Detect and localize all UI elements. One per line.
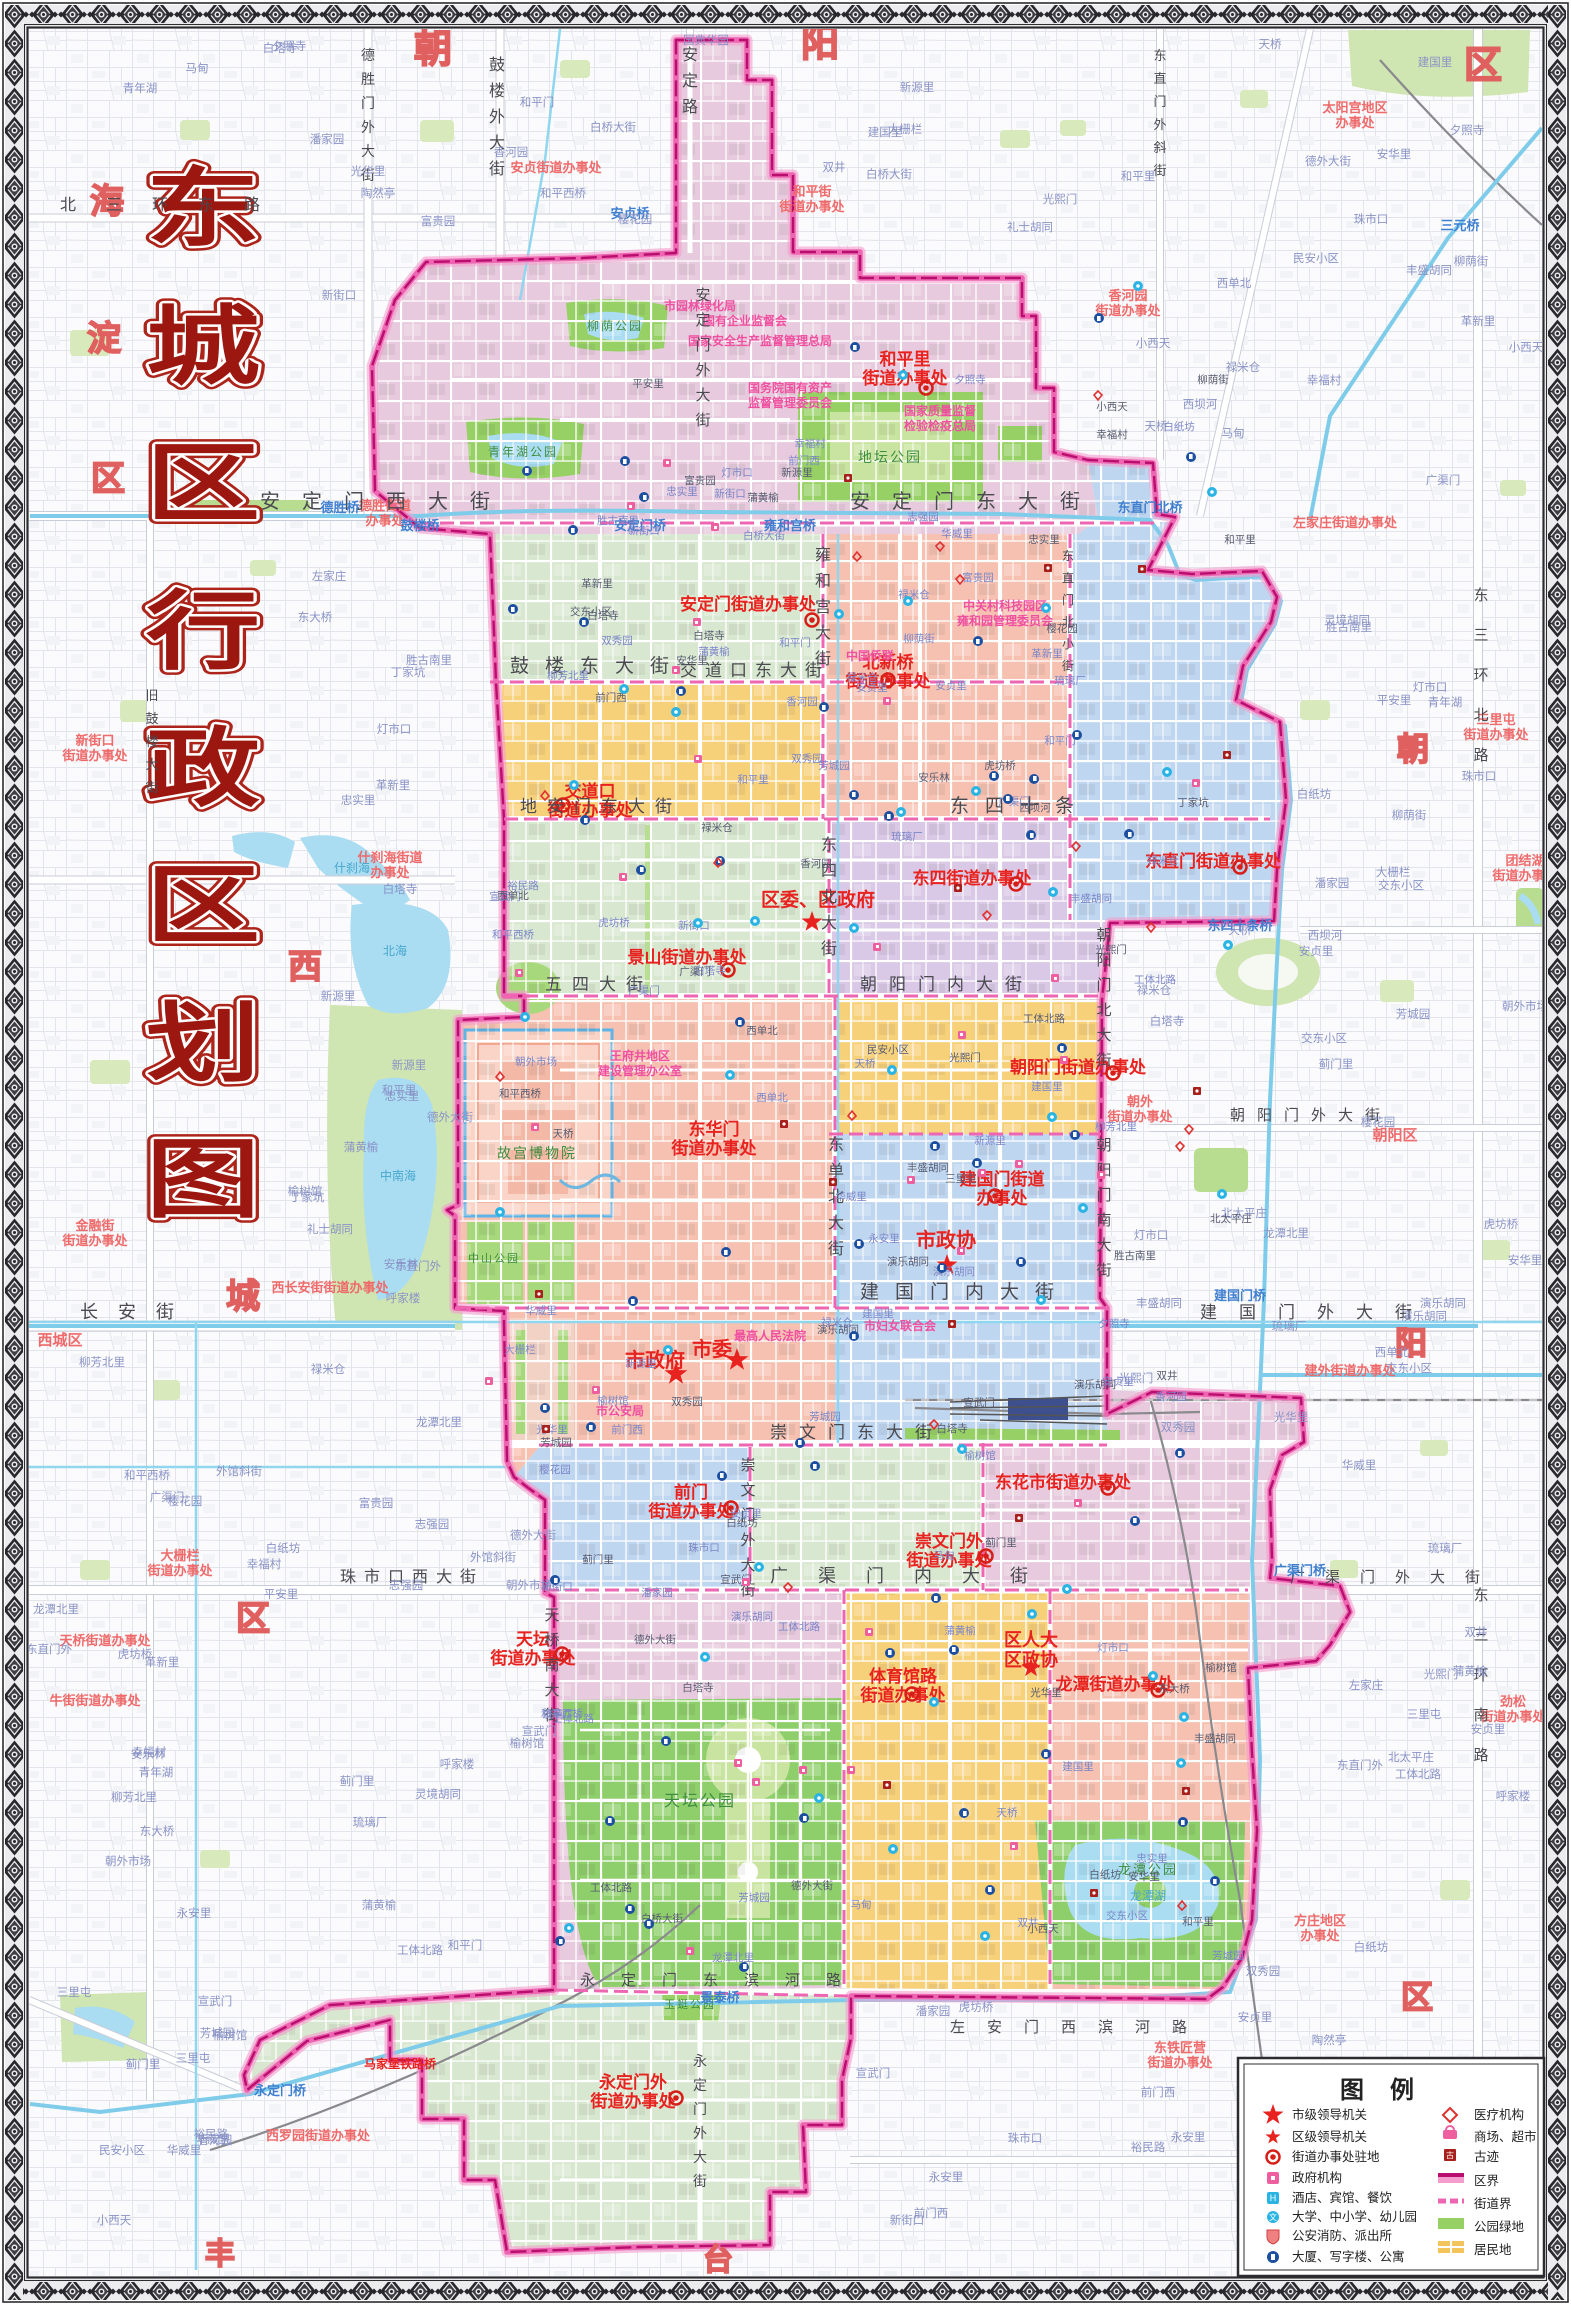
svg-text:丰盛胡同: 丰盛胡同 (1136, 1296, 1182, 1310)
svg-text:建国里: 建国里 (1031, 1080, 1063, 1093)
svg-text:马甸: 马甸 (186, 62, 209, 75)
svg-text:白塔寺: 白塔寺 (682, 1681, 714, 1694)
svg-text:大: 大 (361, 143, 375, 159)
svg-text:光熙门: 光熙门 (1095, 943, 1127, 956)
svg-text:芳城园: 芳城园 (1212, 1949, 1244, 1962)
svg-text:建设管理办公室: 建设管理办公室 (597, 1063, 682, 1078)
svg-text:丰盛胡同: 丰盛胡同 (1194, 1732, 1236, 1745)
svg-text:环: 环 (1473, 667, 1488, 684)
svg-text:和平门: 和平门 (779, 636, 811, 649)
svg-text:行: 行 (146, 584, 260, 680)
svg-text:蒲黄榆: 蒲黄榆 (747, 491, 779, 504)
svg-text:广渠门: 广渠门 (150, 1490, 185, 1504)
svg-text:建国里: 建国里 (1418, 55, 1453, 69)
svg-text:白塔寺: 白塔寺 (1150, 1014, 1185, 1028)
svg-text:安华里: 安华里 (1377, 147, 1412, 161)
svg-text:交东小区: 交东小区 (1106, 1909, 1148, 1922)
svg-text:酒店、宾馆、餐饮: 酒店、宾馆、餐饮 (1292, 2190, 1393, 2205)
svg-text:建国门外大街: 建国门外大街 (1200, 1303, 1434, 1322)
svg-text:外馆斜街: 外馆斜街 (216, 1464, 262, 1478)
svg-text:办事处: 办事处 (365, 513, 405, 528)
svg-text:门: 门 (1062, 592, 1074, 607)
svg-text:虎坊桥: 虎坊桥 (598, 916, 630, 929)
svg-text:北太平庄: 北太平庄 (1210, 1212, 1252, 1225)
svg-text:办事处: 办事处 (370, 865, 410, 880)
svg-text:丰盛胡同: 丰盛胡同 (1070, 892, 1112, 905)
svg-text:工体北路: 工体北路 (397, 1943, 443, 1957)
svg-text:街道办事处: 街道办事处 (590, 2091, 677, 2111)
svg-text:街: 街 (1096, 1052, 1111, 1069)
svg-text:龙潭北里: 龙潭北里 (712, 1951, 754, 1964)
svg-text:小西天: 小西天 (1027, 1923, 1059, 1935)
svg-text:街道办事处: 街道办事处 (1094, 303, 1161, 318)
svg-text:体育馆路: 体育馆路 (869, 1666, 938, 1686)
svg-text:珠市口: 珠市口 (1008, 2131, 1043, 2145)
svg-text:演乐胡同: 演乐胡同 (1420, 1296, 1466, 1310)
svg-text:街道办事处: 街道办事处 (1479, 1709, 1546, 1724)
svg-text:安华里: 安华里 (1128, 1870, 1160, 1883)
svg-text:检验检疫总局: 检验检疫总局 (904, 418, 976, 433)
svg-text:马甸: 马甸 (1222, 427, 1245, 440)
svg-text:榆树馆: 榆树馆 (213, 2028, 248, 2042)
svg-text:街道办事处: 街道办事处 (648, 1501, 735, 1521)
svg-text:公园绿地: 公园绿地 (1474, 2219, 1525, 2234)
svg-text:安: 安 (695, 287, 710, 304)
svg-text:演乐胡同: 演乐胡同 (1401, 1309, 1447, 1323)
svg-text:灯市口: 灯市口 (1134, 1228, 1169, 1242)
svg-text:白桥大街: 白桥大街 (590, 120, 636, 134)
svg-text:西单北: 西单北 (497, 890, 529, 902)
svg-text:樱花园: 樱花园 (618, 212, 653, 226)
svg-text:双秀园: 双秀园 (791, 753, 823, 765)
svg-text:定: 定 (682, 72, 698, 90)
svg-text:崇: 崇 (740, 1457, 755, 1474)
svg-text:和平里: 和平里 (737, 774, 769, 786)
svg-text:夕照寺: 夕照寺 (1450, 124, 1485, 137)
svg-text:柳芳北里: 柳芳北里 (111, 1790, 157, 1804)
svg-text:外: 外 (489, 108, 505, 126)
svg-text:丰盛胡同: 丰盛胡同 (1406, 263, 1452, 277)
svg-text:路: 路 (682, 98, 698, 116)
svg-text:永定门东滨河路: 永定门东滨河路 (580, 1972, 867, 1989)
svg-text:安定门东大街: 安定门东大街 (850, 490, 1102, 513)
svg-text:演乐胡同: 演乐胡同 (887, 1255, 929, 1268)
svg-text:呼家楼: 呼家楼 (386, 1291, 421, 1305)
svg-text:新街口: 新街口 (75, 733, 114, 748)
svg-text:地坛公园: 地坛公园 (858, 449, 922, 465)
svg-text:直: 直 (1062, 571, 1074, 585)
svg-text:前门西: 前门西 (788, 454, 820, 467)
svg-text:街道办事处驻地: 街道办事处驻地 (1292, 2149, 1380, 2164)
svg-text:永定门桥: 永定门桥 (253, 2083, 307, 2098)
svg-text:政: 政 (146, 721, 260, 817)
svg-text:琉璃厂: 琉璃厂 (891, 830, 923, 843)
svg-text:大学、中小学、幼儿园: 大学、中小学、幼儿园 (1292, 2209, 1417, 2224)
svg-text:朝外市场: 朝外市场 (105, 1854, 151, 1868)
svg-text:街: 街 (815, 650, 831, 668)
svg-text:和平里: 和平里 (1182, 1916, 1214, 1928)
svg-text:和平西桥: 和平西桥 (492, 929, 534, 941)
svg-text:蓟门里: 蓟门里 (985, 1536, 1017, 1549)
svg-text:中关村科技园区: 中关村科技园区 (963, 598, 1047, 613)
svg-text:天桥: 天桥 (997, 1807, 1018, 1819)
svg-text:平安里: 平安里 (1377, 693, 1412, 707)
svg-text:香河园: 香河园 (494, 146, 529, 159)
svg-text:鼓: 鼓 (145, 711, 158, 726)
svg-text:外: 外 (361, 119, 375, 135)
svg-text:琉璃厂: 琉璃厂 (542, 1708, 574, 1721)
svg-text:虎坊桥: 虎坊桥 (959, 2000, 994, 2014)
svg-text:潘家园: 潘家园 (641, 1586, 673, 1599)
svg-text:平安里: 平安里 (632, 377, 664, 390)
svg-text:蓟门里: 蓟门里 (126, 2057, 161, 2071)
svg-text:珠市口: 珠市口 (688, 1541, 720, 1554)
svg-text:国家质量监督: 国家质量监督 (904, 403, 976, 418)
svg-text:天: 天 (544, 1607, 559, 1624)
svg-text:青年湖公园: 青年湖公园 (488, 444, 558, 459)
svg-text:榆树馆: 榆树馆 (1205, 1661, 1237, 1674)
svg-text:工体北路: 工体北路 (778, 1620, 820, 1633)
svg-text:柳荫街: 柳荫街 (1454, 254, 1489, 268)
svg-text:白纸坊: 白纸坊 (266, 1541, 301, 1555)
svg-text:国有企业监督会: 国有企业监督会 (703, 313, 788, 328)
svg-text:虎坊桥: 虎坊桥 (1484, 1217, 1519, 1231)
svg-text:文: 文 (740, 1482, 755, 1499)
svg-text:华威里: 华威里 (525, 1304, 557, 1317)
svg-text:北: 北 (1096, 1002, 1111, 1019)
svg-text:革新里: 革新里 (1461, 314, 1496, 328)
svg-text:H: H (1270, 2193, 1277, 2203)
svg-text:安华里: 安华里 (1508, 1253, 1543, 1267)
svg-text:西单北: 西单北 (1217, 277, 1252, 290)
svg-text:龙潭北里: 龙潭北里 (1263, 1227, 1309, 1240)
svg-text:左家庄: 左家庄 (1349, 1678, 1384, 1692)
svg-text:楼: 楼 (145, 734, 158, 749)
svg-text:龙潭北里: 龙潭北里 (33, 1603, 79, 1616)
svg-text:朝外: 朝外 (1127, 1094, 1153, 1109)
svg-text:双井: 双井 (823, 160, 846, 174)
svg-text:街: 街 (489, 160, 505, 178)
svg-text:礼士胡同: 礼士胡同 (307, 1222, 353, 1236)
svg-text:裕民路: 裕民路 (1131, 2140, 1166, 2154)
svg-text:丰: 丰 (205, 2238, 235, 2271)
svg-text:新源里: 新源里 (321, 989, 356, 1003)
svg-text:西坝河: 西坝河 (1308, 928, 1343, 942)
svg-text:东: 东 (1473, 587, 1488, 604)
svg-text:双井: 双井 (1465, 1625, 1488, 1639)
svg-text:西城区: 西城区 (37, 1331, 82, 1349)
svg-text:青年湖: 青年湖 (1428, 695, 1463, 709)
svg-text:王府井地区: 王府井地区 (610, 1048, 670, 1063)
svg-text:宣武门: 宣武门 (522, 1724, 557, 1738)
svg-text:禄米仓: 禄米仓 (311, 1362, 346, 1376)
svg-text:革新里: 革新里 (581, 577, 613, 590)
svg-text:和平西桥: 和平西桥 (540, 187, 586, 200)
svg-text:富贵园: 富贵园 (684, 474, 716, 487)
svg-text:交东小区: 交东小区 (1378, 878, 1424, 892)
svg-text:东: 东 (821, 836, 837, 854)
svg-text:大栅栏: 大栅栏 (1376, 865, 1411, 879)
svg-text:定: 定 (695, 312, 710, 329)
svg-text:城: 城 (146, 299, 260, 395)
svg-text:青年湖: 青年湖 (139, 1765, 174, 1779)
svg-text:金融街: 金融街 (74, 1218, 114, 1233)
svg-text:外: 外 (1153, 117, 1166, 132)
svg-text:医疗机构: 医疗机构 (1474, 2107, 1524, 2122)
svg-text:什刹海: 什刹海 (334, 860, 370, 875)
svg-text:和平街: 和平街 (792, 184, 831, 199)
svg-text:忠实里: 忠实里 (1028, 533, 1060, 546)
svg-text:安贞里: 安贞里 (1299, 944, 1334, 958)
svg-text:双秀园: 双秀园 (1246, 1965, 1281, 1978)
svg-text:光熙门: 光熙门 (1043, 192, 1078, 206)
svg-text:新源里: 新源里 (900, 80, 935, 94)
svg-text:志强园: 志强园 (415, 1518, 450, 1531)
svg-text:德外大街: 德外大街 (634, 1633, 676, 1646)
svg-text:天桥: 天桥 (855, 1058, 876, 1070)
svg-text:朝: 朝 (1397, 731, 1429, 767)
svg-text:东大桥: 东大桥 (140, 1824, 175, 1838)
svg-text:新源里: 新源里 (781, 466, 813, 479)
svg-text:龙潭湖: 龙潭湖 (1130, 1888, 1166, 1903)
svg-text:建国里: 建国里 (862, 1307, 894, 1320)
svg-text:双秀园: 双秀园 (601, 635, 633, 647)
svg-text:前门西: 前门西 (1141, 2085, 1176, 2099)
svg-text:潘家园: 潘家园 (1315, 876, 1350, 890)
svg-text:禄米仓: 禄米仓 (898, 588, 930, 601)
svg-text:蒲黄榆: 蒲黄榆 (362, 1898, 397, 1912)
svg-text:广渠门桥: 广渠门桥 (1274, 1563, 1327, 1578)
svg-text:街: 街 (693, 2173, 707, 2189)
svg-text:双秀园: 双秀园 (1161, 1421, 1196, 1434)
svg-text:鼓楼桥: 鼓楼桥 (400, 518, 440, 533)
svg-text:古迹: 古迹 (1474, 2149, 1500, 2164)
svg-text:建国里: 建国里 (1062, 1760, 1094, 1773)
svg-text:崇文门东大街: 崇文门东大街 (770, 1423, 944, 1442)
svg-text:天桥: 天桥 (553, 1128, 574, 1140)
svg-text:公安消防、派出所: 公安消防、派出所 (1292, 2228, 1392, 2243)
svg-text:德: 德 (361, 47, 375, 63)
svg-text:灯市口: 灯市口 (1097, 1641, 1129, 1654)
svg-text:大: 大 (145, 757, 158, 772)
svg-text:蒲黄榆: 蒲黄榆 (944, 1624, 976, 1637)
svg-text:双井: 双井 (1157, 1369, 1178, 1382)
svg-text:北太平庄: 北太平庄 (1388, 1750, 1434, 1764)
svg-text:柳荫街: 柳荫街 (1392, 808, 1427, 822)
svg-text:樱花园: 樱花园 (1361, 1115, 1396, 1129)
svg-text:新街口: 新街口 (714, 487, 746, 500)
svg-text:街: 街 (1062, 659, 1074, 673)
svg-text:永定门外: 永定门外 (598, 2072, 667, 2092)
svg-text:交东小区: 交东小区 (1386, 1361, 1432, 1375)
svg-text:琉璃厂: 琉璃厂 (1272, 1319, 1307, 1333)
svg-text:朝阳门街道办事处: 朝阳门街道办事处 (1010, 1057, 1147, 1077)
svg-text:小西天: 小西天 (1509, 341, 1544, 354)
svg-text:永安里: 永安里 (929, 2170, 964, 2184)
svg-text:华威里: 华威里 (196, 2132, 231, 2146)
svg-text:大: 大 (821, 914, 837, 932)
svg-text:阳: 阳 (801, 23, 839, 65)
svg-text:德外大街: 德外大街 (1305, 154, 1351, 168)
svg-text:街: 街 (821, 940, 837, 958)
svg-text:街: 街 (1096, 1262, 1111, 1279)
svg-text:光熙门: 光熙门 (949, 1051, 981, 1064)
svg-text:志强园: 志强园 (907, 510, 939, 523)
svg-text:街道办事处: 街道办事处 (671, 1138, 758, 1158)
svg-text:区: 区 (146, 858, 260, 954)
svg-text:街道办事处: 街道办事处 (61, 748, 128, 763)
svg-text:平安里: 平安里 (264, 1587, 299, 1601)
svg-text:门: 门 (693, 2101, 707, 2117)
svg-text:德外大街: 德外大街 (791, 1879, 833, 1892)
svg-text:前门西: 前门西 (611, 1423, 643, 1436)
svg-text:东大桥: 东大桥 (1158, 1682, 1190, 1695)
svg-text:革新里: 革新里 (376, 778, 411, 792)
svg-text:三里屯: 三里屯 (176, 2052, 211, 2065)
svg-text:北: 北 (1473, 707, 1488, 724)
svg-text:外馆斜街: 外馆斜街 (470, 1550, 516, 1564)
svg-text:潘家园: 潘家园 (310, 132, 345, 146)
svg-text:国务院国有资产: 国务院国有资产 (748, 380, 832, 395)
svg-text:大: 大 (740, 1557, 755, 1574)
svg-text:西罗园街道办事处: 西罗园街道办事处 (266, 2128, 371, 2143)
svg-text:外: 外 (740, 1532, 755, 1549)
svg-text:柳芳北里: 柳芳北里 (1095, 1120, 1137, 1133)
svg-text:牛街街道办事处: 牛街街道办事处 (49, 1693, 141, 1708)
svg-text:青年湖: 青年湖 (123, 81, 158, 95)
svg-text:榆树馆: 榆树馆 (597, 1394, 629, 1407)
svg-text:蓟门里: 蓟门里 (582, 1553, 614, 1566)
svg-text:城: 城 (226, 1278, 260, 1316)
svg-text:虎坊桥: 虎坊桥 (984, 759, 1016, 772)
svg-text:民安小区: 民安小区 (99, 2143, 145, 2157)
svg-text:大: 大 (1096, 1237, 1111, 1254)
svg-text:区: 区 (1464, 45, 1502, 87)
svg-text:芳城园: 芳城园 (738, 1891, 770, 1904)
svg-text:中山公园: 中山公园 (468, 1252, 520, 1265)
svg-text:和平西桥: 和平西桥 (124, 1469, 170, 1482)
svg-text:新源里: 新源里 (974, 1134, 1006, 1147)
svg-text:德胜桥: 德胜桥 (320, 500, 360, 515)
svg-text:柳荫街: 柳荫街 (1197, 373, 1229, 386)
svg-text:富贵园: 富贵园 (421, 214, 456, 228)
svg-text:樱花园: 樱花园 (539, 1463, 571, 1476)
svg-text:柳荫公园: 柳荫公园 (587, 319, 643, 333)
svg-text:大: 大 (544, 1682, 559, 1699)
svg-text:琉璃厂: 琉璃厂 (1428, 1541, 1463, 1555)
svg-text:门: 门 (1153, 94, 1166, 109)
svg-text:白桥大街: 白桥大街 (866, 167, 912, 181)
svg-text:和平门: 和平门 (448, 1938, 483, 1952)
svg-text:广渠门: 广渠门 (628, 984, 660, 997)
svg-text:东铁匠营: 东铁匠营 (1154, 2040, 1206, 2055)
svg-text:工体北路: 工体北路 (1395, 1767, 1441, 1781)
svg-text:北海: 北海 (383, 943, 407, 958)
svg-text:东: 东 (1473, 1587, 1488, 1604)
svg-text:革新里: 革新里 (1031, 647, 1063, 660)
svg-text:西: 西 (288, 948, 322, 986)
svg-text:灯市口: 灯市口 (377, 722, 412, 736)
svg-text:街: 街 (145, 780, 158, 795)
svg-text:白塔寺: 白塔寺 (383, 882, 418, 896)
svg-text:工体北路: 工体北路 (1023, 1012, 1065, 1025)
svg-text:南: 南 (544, 1657, 559, 1674)
svg-text:文: 文 (1269, 2212, 1277, 2222)
svg-text:宣武门: 宣武门 (963, 1396, 995, 1409)
svg-text:胜古南里: 胜古南里 (1114, 1249, 1156, 1262)
svg-text:志强园: 志强园 (389, 1579, 424, 1592)
svg-text:雍: 雍 (815, 546, 831, 564)
svg-text:新街口: 新街口 (628, 524, 660, 537)
svg-text:三里屯: 三里屯 (1407, 1708, 1442, 1721)
svg-text:台: 台 (703, 2243, 733, 2277)
svg-text:幸福村: 幸福村 (1307, 373, 1342, 387)
svg-text:蒲黄榆: 蒲黄榆 (698, 645, 730, 658)
svg-text:天桥: 天桥 (1229, 924, 1252, 937)
svg-text:西单北: 西单北 (756, 1092, 788, 1104)
svg-text:广渠门内大街: 广渠门内大街 (770, 1566, 1058, 1586)
svg-text:白塔寺: 白塔寺 (587, 609, 619, 622)
svg-text:虎坊桥: 虎坊桥 (118, 1647, 153, 1661)
svg-text:街道办事处: 街道办事处 (778, 199, 845, 214)
svg-text:珠市口: 珠市口 (1462, 769, 1497, 783)
svg-text:团结湖: 团结湖 (1505, 853, 1544, 868)
svg-text:香河园: 香河园 (1107, 288, 1147, 303)
svg-text:街: 街 (1153, 163, 1166, 178)
svg-text:夕照寺: 夕照寺 (1098, 1318, 1130, 1330)
svg-text:大栅栏: 大栅栏 (504, 1343, 536, 1356)
svg-text:崇文门外: 崇文门外 (915, 1531, 983, 1551)
svg-text:广渠门: 广渠门 (679, 965, 711, 978)
svg-text:南: 南 (1473, 1707, 1488, 1724)
svg-text:南: 南 (1096, 1212, 1111, 1229)
svg-text:东: 东 (1062, 549, 1074, 563)
svg-text:礼士胡同: 礼士胡同 (1007, 220, 1053, 234)
svg-text:三: 三 (1473, 627, 1488, 644)
svg-text:西长安街街道办事处: 西长安街街道办事处 (271, 1280, 389, 1295)
svg-text:蓟门里: 蓟门里 (340, 1774, 375, 1788)
svg-text:华威里: 华威里 (835, 1190, 867, 1203)
svg-text:东直门外: 东直门外 (1337, 1758, 1383, 1772)
svg-text:灯市口: 灯市口 (721, 466, 753, 479)
svg-text:光华里: 光华里 (351, 164, 386, 178)
svg-text:白塔寺: 白塔寺 (693, 629, 725, 642)
svg-text:民安小区: 民安小区 (867, 1043, 909, 1056)
svg-text:安定门街道办事处: 安定门街道办事处 (680, 594, 817, 614)
svg-text:工体北路: 工体北路 (1134, 973, 1176, 986)
svg-text:天坛公园: 天坛公园 (664, 1792, 736, 1810)
svg-text:德外大街: 德外大街 (510, 1528, 556, 1542)
svg-text:灵境胡同: 灵境胡同 (1324, 613, 1370, 627)
svg-text:图例: 图例 (1340, 2077, 1440, 2104)
svg-text:双秀园: 双秀园 (671, 1396, 703, 1408)
svg-text:政府机构: 政府机构 (1292, 2170, 1342, 2185)
svg-text:永: 永 (693, 2053, 707, 2069)
svg-text:商场、超市: 商场、超市 (1474, 2129, 1537, 2144)
svg-text:灵境胡同: 灵境胡同 (415, 1787, 461, 1801)
svg-text:白桥大街: 白桥大街 (743, 529, 785, 542)
svg-text:区: 区 (146, 436, 260, 532)
svg-text:樱花园: 樱花园 (1046, 622, 1078, 635)
svg-text:左家庄街道办事处: 左家庄街道办事处 (1293, 515, 1398, 530)
svg-text:马甸: 马甸 (934, 1549, 955, 1562)
svg-text:国典华园: 国典华园 (683, 33, 729, 47)
svg-text:西坝河: 西坝河 (1183, 397, 1218, 411)
svg-text:德外大街: 德外大街 (427, 1110, 473, 1124)
svg-text:东直门北桥: 东直门北桥 (1117, 500, 1183, 515)
svg-text:幸福村: 幸福村 (1096, 428, 1128, 441)
svg-text:楼: 楼 (489, 82, 505, 100)
